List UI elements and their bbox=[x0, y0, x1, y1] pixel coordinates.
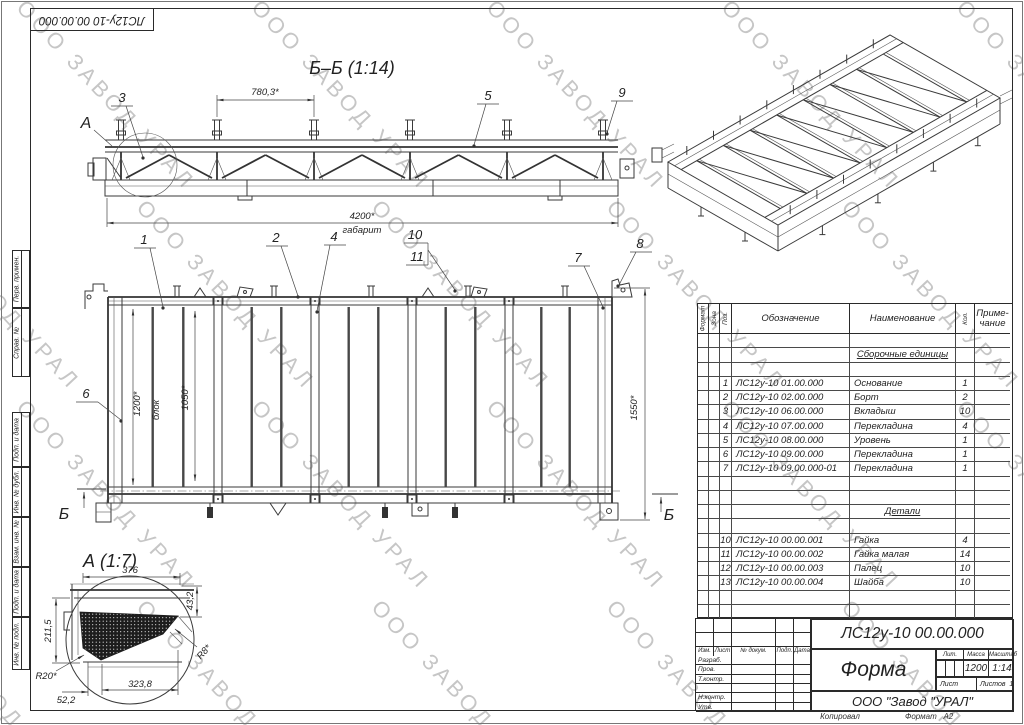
spec-cell: 13 bbox=[720, 576, 732, 590]
margin-stamp-label: Взам. инв. № bbox=[13, 518, 22, 566]
spec-col-designation: Обозначение bbox=[732, 304, 850, 334]
spec-cell bbox=[956, 605, 975, 619]
spec-cell bbox=[698, 548, 709, 562]
title-block-signature-rows: Разраб. Пров. Т.контр. Н.контр. Утв. bbox=[696, 656, 811, 712]
watermark-text: ООО ЗАВОД УРАЛ bbox=[11, 395, 200, 595]
spec-cell bbox=[709, 448, 720, 462]
lit-label: Лит. bbox=[937, 650, 964, 660]
spec-cell bbox=[698, 505, 709, 519]
margin-stamp-label: Подп. и дата bbox=[13, 413, 22, 466]
spec-row bbox=[698, 334, 1012, 348]
row-prov: Пров. bbox=[696, 665, 732, 674]
spec-cell bbox=[709, 348, 720, 362]
spec-cell bbox=[956, 334, 975, 348]
spec-cell: 6 bbox=[720, 448, 732, 462]
watermark-text: ООО ЗАВОД УРАЛ bbox=[481, 0, 670, 195]
spec-row: 12ЛС12у-10 00.00.003Палец10 bbox=[698, 562, 1012, 576]
spec-row: 7ЛС12у-10 09.00.000-01Перекладина1 bbox=[698, 462, 1012, 476]
spec-row: 6ЛС12у-10 09.00.000Перекладина1 bbox=[698, 448, 1012, 462]
col-data: Дата bbox=[794, 647, 811, 656]
spec-cell: 1 bbox=[956, 434, 975, 448]
spec-col-name: Наименование bbox=[850, 304, 956, 334]
spec-cell bbox=[732, 363, 850, 377]
spec-cell bbox=[709, 534, 720, 548]
spec-cell bbox=[698, 576, 709, 590]
spec-cell bbox=[975, 576, 1010, 590]
spec-cell bbox=[975, 548, 1010, 562]
watermark-text: ООО ЗАВОД УРАЛ bbox=[131, 595, 320, 725]
spec-cell: 10 bbox=[956, 405, 975, 419]
spec-cell bbox=[732, 348, 850, 362]
spec-cell bbox=[709, 405, 720, 419]
spec-cell bbox=[732, 519, 850, 533]
spec-cell bbox=[709, 363, 720, 377]
spec-row bbox=[698, 477, 1012, 491]
watermark-text: ООО ЗАВОД УРАЛ bbox=[366, 195, 555, 395]
spec-row bbox=[698, 363, 1012, 377]
spec-row bbox=[698, 591, 1012, 605]
spec-cell bbox=[698, 391, 709, 405]
lit-mass-scale-values: 1200 1:14 bbox=[936, 660, 1014, 677]
spec-cell bbox=[975, 591, 1010, 605]
spec-cell: 5 bbox=[720, 434, 732, 448]
spec-cell bbox=[975, 605, 1010, 619]
spec-cell bbox=[709, 477, 720, 491]
spec-cell: Перекладина bbox=[850, 448, 956, 462]
scale-label: Масштаб bbox=[989, 650, 1015, 660]
spec-cell: Палец bbox=[850, 562, 956, 576]
spec-cell bbox=[709, 491, 720, 505]
spec-cell: 7 bbox=[720, 462, 732, 476]
row-utv: Утв. bbox=[696, 703, 732, 712]
spec-cell: Шайба bbox=[850, 576, 956, 590]
spec-cell bbox=[956, 491, 975, 505]
spec-row: 3ЛС12у-10 06.00.000Вкладыш10 bbox=[698, 405, 1012, 419]
spec-cell: ЛС12у-10 02.00.000 bbox=[732, 391, 850, 405]
spec-row: 5ЛС12у-10 08.00.000Уровень1 bbox=[698, 434, 1012, 448]
scale-value: 1:14 bbox=[989, 661, 1015, 677]
spec-cell bbox=[698, 605, 709, 619]
margin-stamp-sprav-no: Справ. № bbox=[12, 308, 30, 377]
watermark-text: ООО ЗАВОД УРАЛ bbox=[246, 0, 435, 195]
sheets-count: Листов 1 bbox=[977, 678, 1015, 691]
margin-stamp-label: Перв. примен. bbox=[13, 251, 22, 307]
spec-cell: 4 bbox=[956, 420, 975, 434]
title-block: Изм. Лист № докум. Подп. Дата Разраб. Пр… bbox=[695, 618, 1013, 711]
spec-cell bbox=[720, 477, 732, 491]
spec-cell: 12 bbox=[720, 562, 732, 576]
spec-cell bbox=[698, 448, 709, 462]
margin-stamp-vzam-inv: Взам. инв. № bbox=[12, 517, 30, 567]
spec-cell bbox=[698, 405, 709, 419]
spec-cell: 1 bbox=[720, 377, 732, 391]
spec-cell: 14 bbox=[956, 548, 975, 562]
lit-mass-scale-header: Лит. Масса Масштаб bbox=[936, 649, 1014, 660]
spec-row: 2ЛС12у-10 02.00.000Борт2 bbox=[698, 391, 1012, 405]
title-name: Форма bbox=[811, 649, 936, 691]
watermark-text: ООО ЗАВОД УРАЛ bbox=[951, 0, 1024, 195]
title-block-spare-grid bbox=[696, 619, 811, 647]
row-blank bbox=[696, 684, 732, 693]
spec-cell bbox=[698, 434, 709, 448]
spec-cell: 1 bbox=[956, 462, 975, 476]
spec-row bbox=[698, 605, 1012, 619]
spec-cell bbox=[732, 477, 850, 491]
spec-table: Формат Зона Поз. Обозначение Наименовани… bbox=[697, 303, 1013, 618]
spec-cell: Сборочные единицы bbox=[850, 348, 956, 362]
spec-cell: 10 bbox=[956, 576, 975, 590]
spec-cell bbox=[698, 420, 709, 434]
corner-designation-box: ЛС12у-10 00.00.000 bbox=[30, 8, 154, 31]
spec-cell bbox=[975, 420, 1010, 434]
spec-cell: 10 bbox=[956, 562, 975, 576]
spec-cell: Вкладыш bbox=[850, 405, 956, 419]
mass-label: Масса bbox=[964, 650, 989, 660]
spec-cell: ЛС12у-10 09.00.000-01 bbox=[732, 462, 850, 476]
spec-cell: ЛС12у-10 00.00.002 bbox=[732, 548, 850, 562]
margin-stamp-inv-dubl: Инв. № дубл. bbox=[12, 467, 30, 517]
spec-cell: Детали bbox=[850, 505, 956, 519]
margin-stamp-podp-data-2: Подп. и дата bbox=[12, 567, 30, 617]
margin-stamp-label: Подп. и дата bbox=[13, 568, 22, 616]
spec-cell bbox=[975, 391, 1010, 405]
col-podp: Подп. bbox=[776, 647, 794, 656]
spec-row bbox=[698, 491, 1012, 505]
spec-cell bbox=[850, 605, 956, 619]
spec-cell: ЛС12у-10 07.00.000 bbox=[732, 420, 850, 434]
spec-cell bbox=[850, 491, 956, 505]
margin-stamp-perv-primen: Перв. примен. bbox=[12, 250, 30, 308]
margin-stamp-podp-data-1: Подп. и дата bbox=[12, 412, 30, 467]
spec-cell: 4 bbox=[956, 534, 975, 548]
spec-cell bbox=[850, 477, 956, 491]
spec-cell bbox=[850, 519, 956, 533]
spec-cell bbox=[975, 477, 1010, 491]
spec-cell bbox=[975, 448, 1010, 462]
spec-col-zone: Зона bbox=[709, 304, 720, 334]
spec-cell bbox=[975, 505, 1010, 519]
spec-cell: Борт bbox=[850, 391, 956, 405]
col-dokum: № докум. bbox=[732, 647, 776, 656]
spec-cell: ЛС12у-10 09.00.000 bbox=[732, 448, 850, 462]
spec-cell bbox=[850, 334, 956, 348]
corner-designation-text: ЛС12у-10 00.00.000 bbox=[39, 14, 145, 26]
watermark-text: ООО ЗАВОД УРАЛ bbox=[716, 0, 905, 195]
margin-stamp-label: Справ. № bbox=[13, 309, 22, 376]
spec-cell bbox=[975, 519, 1010, 533]
copied-note: Копировал bbox=[770, 712, 910, 721]
spec-cell bbox=[709, 434, 720, 448]
spec-cell: ЛС12у-10 00.00.003 bbox=[732, 562, 850, 576]
spec-cell bbox=[956, 363, 975, 377]
spec-cell bbox=[732, 591, 850, 605]
spec-cell: 4 bbox=[720, 420, 732, 434]
spec-cell: 1 bbox=[956, 448, 975, 462]
spec-cell bbox=[850, 591, 956, 605]
sheet-label: Лист bbox=[937, 678, 977, 691]
spec-cell: 3 bbox=[720, 405, 732, 419]
spec-cell bbox=[732, 505, 850, 519]
spec-cell bbox=[732, 334, 850, 348]
spec-cell bbox=[720, 334, 732, 348]
spec-cell bbox=[975, 534, 1010, 548]
spec-cell: 11 bbox=[720, 548, 732, 562]
spec-col-pos: Поз. bbox=[720, 304, 732, 334]
company-name: ООО "Завод "УРАЛ" bbox=[811, 691, 1014, 712]
spec-row bbox=[698, 519, 1012, 533]
spec-cell bbox=[850, 363, 956, 377]
margin-stamp-inv-podl: Инв. № подл. bbox=[12, 617, 30, 670]
spec-cell bbox=[720, 363, 732, 377]
spec-cell: Основание bbox=[850, 377, 956, 391]
spec-cell bbox=[709, 576, 720, 590]
spec-cell bbox=[975, 363, 1010, 377]
spec-cell bbox=[709, 462, 720, 476]
spec-cell: Уровень bbox=[850, 434, 956, 448]
title-designation: ЛС12у-10 00.00.000 bbox=[811, 619, 1014, 649]
spec-cell: 2 bbox=[956, 391, 975, 405]
spec-cell bbox=[698, 477, 709, 491]
spec-cell bbox=[720, 491, 732, 505]
spec-col-note: Приме-чание bbox=[975, 304, 1010, 334]
spec-cell: 2 bbox=[720, 391, 732, 405]
spec-cell bbox=[698, 377, 709, 391]
format-value: А2 bbox=[943, 712, 953, 721]
spec-cell bbox=[698, 534, 709, 548]
spec-cell bbox=[698, 491, 709, 505]
watermark-text: ООО ЗАВОД УРАЛ bbox=[246, 395, 435, 595]
spec-cell: ЛС12у-10 06.00.000 bbox=[732, 405, 850, 419]
spec-cell bbox=[956, 591, 975, 605]
spec-cell bbox=[709, 377, 720, 391]
spec-cell bbox=[709, 591, 720, 605]
watermark-text: ООО ЗАВОД УРАЛ bbox=[481, 395, 670, 595]
spec-cell bbox=[720, 348, 732, 362]
spec-cell bbox=[698, 348, 709, 362]
spec-table-body: Сборочные единицы1ЛС12у-10 01.00.000Осно… bbox=[698, 334, 1012, 619]
row-tkontr: Т.контр. bbox=[696, 675, 732, 684]
spec-cell bbox=[709, 519, 720, 533]
spec-cell bbox=[975, 377, 1010, 391]
spec-cell bbox=[720, 605, 732, 619]
watermark-text: ООО ЗАВОД УРАЛ bbox=[131, 195, 320, 395]
spec-cell bbox=[975, 434, 1010, 448]
title-block-header-row: Изм. Лист № докум. Подп. Дата bbox=[696, 647, 811, 656]
col-list: Лист bbox=[714, 647, 732, 656]
spec-cell: ЛС12у-10 00.00.001 bbox=[732, 534, 850, 548]
spec-cell bbox=[720, 505, 732, 519]
spec-cell bbox=[709, 391, 720, 405]
spec-col-qty: Кол. bbox=[956, 304, 975, 334]
watermark-text: ООО ЗАВОД УРАЛ bbox=[366, 595, 555, 725]
spec-cell bbox=[698, 519, 709, 533]
spec-cell bbox=[709, 605, 720, 619]
spec-cell bbox=[956, 505, 975, 519]
col-izm: Изм. bbox=[696, 647, 714, 656]
spec-cell bbox=[720, 519, 732, 533]
spec-cell bbox=[709, 548, 720, 562]
spec-cell bbox=[975, 462, 1010, 476]
spec-row: 4ЛС12у-10 07.00.000Перекладина4 bbox=[698, 420, 1012, 434]
spec-row: 11ЛС12у-10 00.00.002Гайка малая14 bbox=[698, 548, 1012, 562]
spec-row: 13ЛС12у-10 00.00.004Шайба10 bbox=[698, 576, 1012, 590]
spec-cell: 10 bbox=[720, 534, 732, 548]
spec-cell bbox=[709, 562, 720, 576]
spec-cell bbox=[698, 591, 709, 605]
format-note: Формат А2 bbox=[905, 712, 953, 721]
spec-row: 10ЛС12у-10 00.00.001Гайка4 bbox=[698, 534, 1012, 548]
drawing-sheet: ООО ЗАВОД УРАЛООО ЗАВОД УРАЛООО ЗАВОД УР… bbox=[0, 0, 1024, 725]
spec-cell bbox=[720, 591, 732, 605]
spec-cell: ЛС12у-10 01.00.000 bbox=[732, 377, 850, 391]
spec-cell: Перекладина bbox=[850, 462, 956, 476]
spec-cell bbox=[709, 334, 720, 348]
spec-cell bbox=[698, 334, 709, 348]
spec-row: Детали bbox=[698, 505, 1012, 519]
spec-cell bbox=[975, 562, 1010, 576]
spec-cell bbox=[975, 334, 1010, 348]
margin-stamp-label: Инв. № подл. bbox=[13, 618, 22, 669]
spec-cell bbox=[975, 348, 1010, 362]
margin-stamp-label: Инв. № дубл. bbox=[13, 468, 22, 516]
spec-table-header: Формат Зона Поз. Обозначение Наименовани… bbox=[698, 304, 1012, 334]
spec-cell: ЛС12у-10 08.00.000 bbox=[732, 434, 850, 448]
spec-cell: Гайка bbox=[850, 534, 956, 548]
spec-cell bbox=[709, 505, 720, 519]
spec-row: Сборочные единицы bbox=[698, 348, 1012, 362]
spec-col-format: Формат bbox=[698, 304, 709, 334]
spec-cell bbox=[975, 405, 1010, 419]
mass-value: 1200 bbox=[964, 661, 989, 677]
spec-cell bbox=[975, 491, 1010, 505]
row-razrab: Разраб. bbox=[696, 656, 732, 665]
spec-cell bbox=[732, 605, 850, 619]
spec-cell bbox=[698, 363, 709, 377]
spec-cell bbox=[956, 519, 975, 533]
spec-cell: Гайка малая bbox=[850, 548, 956, 562]
sheets-row: Лист Листов 1 bbox=[936, 677, 1014, 691]
row-nkontr: Н.контр. bbox=[696, 693, 732, 702]
spec-cell: Перекладина bbox=[850, 420, 956, 434]
spec-cell: 1 bbox=[956, 377, 975, 391]
spec-cell bbox=[709, 420, 720, 434]
spec-cell bbox=[956, 477, 975, 491]
spec-cell bbox=[698, 562, 709, 576]
spec-cell bbox=[956, 348, 975, 362]
spec-cell bbox=[698, 462, 709, 476]
spec-row: 1ЛС12у-10 01.00.000Основание1 bbox=[698, 377, 1012, 391]
spec-cell bbox=[732, 491, 850, 505]
spec-cell: ЛС12у-10 00.00.004 bbox=[732, 576, 850, 590]
